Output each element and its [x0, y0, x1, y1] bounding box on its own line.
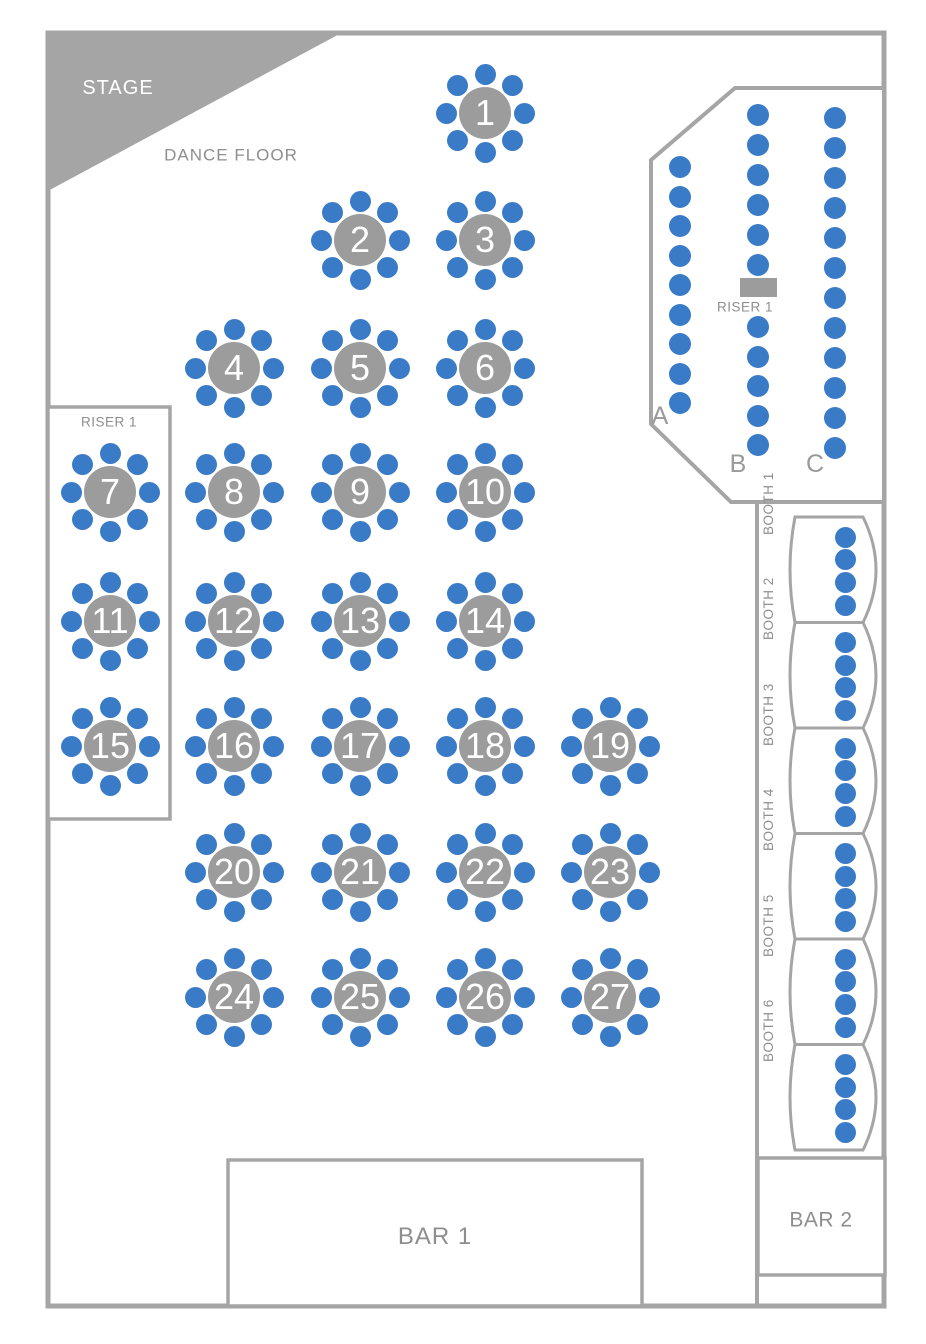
- table-2-chair[interactable]: [389, 230, 410, 251]
- table-1-chair[interactable]: [436, 103, 457, 124]
- table-11-chair[interactable]: [72, 638, 93, 659]
- booth-5-label: BOOTH 5: [762, 937, 852, 957]
- table-18-chair[interactable]: [502, 708, 523, 729]
- table-3-chair[interactable]: [475, 269, 496, 290]
- table-10-chair[interactable]: [514, 482, 535, 503]
- table-19-chair[interactable]: [600, 697, 621, 718]
- table-4[interactable]: 4: [208, 342, 260, 394]
- table-24[interactable]: 24: [208, 971, 260, 1023]
- table-16-chair[interactable]: [224, 697, 245, 718]
- table-5-chair[interactable]: [322, 330, 343, 351]
- table-6-chair[interactable]: [447, 330, 468, 351]
- table-5-chair[interactable]: [322, 385, 343, 406]
- table-18-chair[interactable]: [447, 763, 468, 784]
- row-A-seat[interactable]: [669, 215, 691, 237]
- table-26-chair[interactable]: [436, 987, 457, 1008]
- table-23-chair[interactable]: [600, 823, 621, 844]
- table-4-chair[interactable]: [196, 330, 217, 351]
- table-10-chair[interactable]: [502, 509, 523, 530]
- table-18-chair[interactable]: [514, 736, 535, 757]
- table-21-chair[interactable]: [350, 823, 371, 844]
- table-3-chair[interactable]: [447, 257, 468, 278]
- table-9-chair[interactable]: [322, 509, 343, 530]
- table-1-chair[interactable]: [447, 130, 468, 151]
- table-6-chair[interactable]: [436, 358, 457, 379]
- table-13-chair[interactable]: [311, 611, 332, 632]
- table-18-chair[interactable]: [502, 763, 523, 784]
- table-14-chair[interactable]: [475, 650, 496, 671]
- table-9-chair[interactable]: [350, 521, 371, 542]
- table-6-chair[interactable]: [514, 358, 535, 379]
- table-17-chair[interactable]: [377, 708, 398, 729]
- table-25-chair[interactable]: [377, 1014, 398, 1035]
- row-A-seat[interactable]: [669, 245, 691, 267]
- row-A-seat[interactable]: [669, 363, 691, 385]
- table-23-chair[interactable]: [627, 834, 648, 855]
- row-C-seat[interactable]: [824, 227, 846, 249]
- table-14-chair[interactable]: [475, 572, 496, 593]
- left-riser-label: RISER 1: [81, 415, 137, 429]
- table-18-chair[interactable]: [475, 697, 496, 718]
- table-24-chair[interactable]: [224, 948, 245, 969]
- table-7-chair[interactable]: [127, 454, 148, 475]
- table-22-chair[interactable]: [475, 823, 496, 844]
- table-10[interactable]: 10: [459, 466, 511, 518]
- table-16-chair[interactable]: [251, 708, 272, 729]
- table-3-chair[interactable]: [514, 230, 535, 251]
- row-C-seat[interactable]: [824, 407, 846, 429]
- table-8[interactable]: 8: [208, 466, 260, 518]
- table-19-chair[interactable]: [600, 775, 621, 796]
- table-14-chair[interactable]: [514, 611, 535, 632]
- row-B-seat[interactable]: [747, 134, 769, 156]
- table-20[interactable]: 20: [208, 846, 260, 898]
- table-5-chair[interactable]: [311, 358, 332, 379]
- table-12-chair[interactable]: [224, 650, 245, 671]
- table-24-chair[interactable]: [224, 1026, 245, 1047]
- row-C-seat[interactable]: [824, 197, 846, 219]
- table-27-chair[interactable]: [600, 1026, 621, 1047]
- table-10-chair[interactable]: [502, 454, 523, 475]
- table-11-chair[interactable]: [100, 572, 121, 593]
- table-20-chair[interactable]: [224, 823, 245, 844]
- table-4-chair[interactable]: [224, 397, 245, 418]
- table-17-chair[interactable]: [389, 736, 410, 757]
- table-25-chair[interactable]: [311, 987, 332, 1008]
- table-6-chair[interactable]: [475, 319, 496, 340]
- table-2-chair[interactable]: [311, 230, 332, 251]
- booth-3-seat[interactable]: [835, 783, 856, 804]
- table-25-chair[interactable]: [350, 1026, 371, 1047]
- table-25[interactable]: 25: [334, 971, 386, 1023]
- table-4-chair[interactable]: [196, 385, 217, 406]
- table-26-chair[interactable]: [514, 987, 535, 1008]
- table-11-chair[interactable]: [139, 611, 160, 632]
- table-23-chair[interactable]: [561, 862, 582, 883]
- table-16[interactable]: 16: [208, 720, 260, 772]
- table-2-chair[interactable]: [350, 269, 371, 290]
- table-22-chair[interactable]: [502, 889, 523, 910]
- table-7-chair[interactable]: [127, 509, 148, 530]
- table-22-chair[interactable]: [475, 901, 496, 922]
- table-21-chair[interactable]: [377, 834, 398, 855]
- table-19-chair[interactable]: [627, 708, 648, 729]
- table-13-chair[interactable]: [350, 650, 371, 671]
- booth-5-seat[interactable]: [835, 1017, 856, 1038]
- table-17-chair[interactable]: [350, 697, 371, 718]
- table-26[interactable]: 26: [459, 971, 511, 1023]
- table-7-chair[interactable]: [72, 509, 93, 530]
- table-6[interactable]: 6: [459, 342, 511, 394]
- table-22-chair[interactable]: [436, 862, 457, 883]
- table-15-chair[interactable]: [61, 736, 82, 757]
- table-18[interactable]: 18: [459, 720, 511, 772]
- table-9-chair[interactable]: [377, 454, 398, 475]
- table-10-chair[interactable]: [447, 509, 468, 530]
- table-17-chair[interactable]: [322, 763, 343, 784]
- table-11-chair[interactable]: [72, 583, 93, 604]
- table-2-chair[interactable]: [377, 202, 398, 223]
- table-12-chair[interactable]: [196, 638, 217, 659]
- table-4-chair[interactable]: [251, 330, 272, 351]
- table-4-chair[interactable]: [185, 358, 206, 379]
- table-13-chair[interactable]: [322, 638, 343, 659]
- table-1[interactable]: 1: [459, 87, 511, 139]
- table-22-chair[interactable]: [447, 889, 468, 910]
- table-1-chair[interactable]: [475, 142, 496, 163]
- table-12-chair[interactable]: [251, 583, 272, 604]
- table-24-chair[interactable]: [196, 1014, 217, 1035]
- table-22-chair[interactable]: [514, 862, 535, 883]
- table-10-chair[interactable]: [475, 443, 496, 464]
- stage-label: STAGE: [82, 78, 153, 98]
- table-9-chair[interactable]: [311, 482, 332, 503]
- row-C-seat[interactable]: [824, 317, 846, 339]
- table-24-chair[interactable]: [185, 987, 206, 1008]
- booth-5-seat[interactable]: [835, 994, 856, 1015]
- table-24-chair[interactable]: [263, 987, 284, 1008]
- table-22-chair[interactable]: [502, 834, 523, 855]
- row-C-seat[interactable]: [824, 287, 846, 309]
- row-C-seat[interactable]: [824, 137, 846, 159]
- booth-2-seat[interactable]: [835, 655, 856, 676]
- booth-2-label: BOOTH 2: [762, 620, 852, 640]
- table-21-chair[interactable]: [350, 901, 371, 922]
- table-10-chair[interactable]: [436, 482, 457, 503]
- table-4-chair[interactable]: [224, 319, 245, 340]
- table-2-chair[interactable]: [322, 202, 343, 223]
- table-12[interactable]: 12: [208, 595, 260, 647]
- table-5-chair[interactable]: [350, 319, 371, 340]
- table-15-chair[interactable]: [72, 763, 93, 784]
- table-16-chair[interactable]: [185, 736, 206, 757]
- table-12-chair[interactable]: [251, 638, 272, 659]
- table-21[interactable]: 21: [334, 846, 386, 898]
- table-20-chair[interactable]: [251, 834, 272, 855]
- floorplan-structure: [0, 0, 926, 1344]
- table-3-chair[interactable]: [447, 202, 468, 223]
- table-24-chair[interactable]: [251, 1014, 272, 1035]
- table-23-chair[interactable]: [639, 862, 660, 883]
- row-B-seat[interactable]: [747, 254, 769, 276]
- table-20-chair[interactable]: [224, 901, 245, 922]
- row-C-seat[interactable]: [824, 347, 846, 369]
- table-13[interactable]: 13: [334, 595, 386, 647]
- table-13-chair[interactable]: [350, 572, 371, 593]
- row-A-seat[interactable]: [669, 333, 691, 355]
- table-9[interactable]: 9: [334, 466, 386, 518]
- table-15-chair[interactable]: [100, 697, 121, 718]
- table-3[interactable]: 3: [459, 214, 511, 266]
- row-C-seat[interactable]: [824, 257, 846, 279]
- row-A-seat[interactable]: [669, 304, 691, 326]
- table-3-chair[interactable]: [502, 202, 523, 223]
- table-4-chair[interactable]: [251, 385, 272, 406]
- booth-6-seat[interactable]: [835, 1077, 856, 1098]
- table-13-chair[interactable]: [377, 583, 398, 604]
- booth-1-seat[interactable]: [835, 572, 856, 593]
- table-7-chair[interactable]: [139, 482, 160, 503]
- table-5-chair[interactable]: [350, 397, 371, 418]
- row-B-seat[interactable]: [747, 104, 769, 126]
- table-8-chair[interactable]: [224, 443, 245, 464]
- booth-4-seat[interactable]: [835, 911, 856, 932]
- table-19[interactable]: 19: [584, 720, 636, 772]
- table-5-chair[interactable]: [389, 358, 410, 379]
- theater-row-label-B: B: [718, 451, 758, 477]
- row-B-seat[interactable]: [747, 194, 769, 216]
- table-16-chair[interactable]: [263, 736, 284, 757]
- table-24-chair[interactable]: [251, 959, 272, 980]
- table-20-chair[interactable]: [251, 889, 272, 910]
- table-27-chair[interactable]: [561, 987, 582, 1008]
- table-12-chair[interactable]: [263, 611, 284, 632]
- table-26-chair[interactable]: [502, 1014, 523, 1035]
- bar2-label: BAR 2: [789, 1210, 852, 1231]
- booth-5-seat[interactable]: [835, 971, 856, 992]
- table-7[interactable]: 7: [84, 466, 136, 518]
- booth-4-seat[interactable]: [835, 866, 856, 887]
- table-7-chair[interactable]: [100, 443, 121, 464]
- table-26-chair[interactable]: [475, 1026, 496, 1047]
- table-5-chair[interactable]: [377, 385, 398, 406]
- table-15-chair[interactable]: [100, 775, 121, 796]
- table-27-chair[interactable]: [600, 948, 621, 969]
- table-12-chair[interactable]: [185, 611, 206, 632]
- table-21-chair[interactable]: [389, 862, 410, 883]
- booth-3-seat[interactable]: [835, 760, 856, 781]
- bar1-label: BAR 1: [398, 1225, 472, 1249]
- table-19-chair[interactable]: [639, 736, 660, 757]
- table-11[interactable]: 11: [84, 595, 136, 647]
- table-25-chair[interactable]: [389, 987, 410, 1008]
- table-17[interactable]: 17: [334, 720, 386, 772]
- table-26-chair[interactable]: [502, 959, 523, 980]
- table-21-chair[interactable]: [322, 889, 343, 910]
- booth-6-seat[interactable]: [835, 1122, 856, 1143]
- table-26-chair[interactable]: [475, 948, 496, 969]
- theater-riser-label: RISER 1: [717, 300, 773, 314]
- table-7-chair[interactable]: [100, 521, 121, 542]
- table-6-chair[interactable]: [502, 330, 523, 351]
- table-2-chair[interactable]: [350, 191, 371, 212]
- row-A-seat[interactable]: [669, 156, 691, 178]
- table-20-chair[interactable]: [196, 889, 217, 910]
- theater-row-label-C: C: [795, 451, 835, 477]
- table-8-chair[interactable]: [185, 482, 206, 503]
- table-9-chair[interactable]: [350, 443, 371, 464]
- table-18-chair[interactable]: [436, 736, 457, 757]
- table-13-chair[interactable]: [389, 611, 410, 632]
- table-17-chair[interactable]: [311, 736, 332, 757]
- booth-4-label: BOOTH 4: [762, 831, 852, 851]
- table-8-chair[interactable]: [263, 482, 284, 503]
- booth-1-label: BOOTH 1: [762, 515, 852, 535]
- table-9-chair[interactable]: [377, 509, 398, 530]
- table-16-chair[interactable]: [196, 763, 217, 784]
- table-27-chair[interactable]: [639, 987, 660, 1008]
- table-1-chair[interactable]: [447, 75, 468, 96]
- table-3-chair[interactable]: [436, 230, 457, 251]
- table-25-chair[interactable]: [350, 948, 371, 969]
- table-1-chair[interactable]: [514, 103, 535, 124]
- table-16-chair[interactable]: [224, 775, 245, 796]
- table-3-chair[interactable]: [502, 257, 523, 278]
- table-2[interactable]: 2: [334, 214, 386, 266]
- booth-1-seat[interactable]: [835, 549, 856, 570]
- booth-6-seat[interactable]: [835, 1099, 856, 1120]
- table-8-chair[interactable]: [251, 509, 272, 530]
- table-19-chair[interactable]: [627, 763, 648, 784]
- row-B-seat[interactable]: [747, 405, 769, 427]
- table-19-chair[interactable]: [561, 736, 582, 757]
- row-B-seat[interactable]: [747, 164, 769, 186]
- booth-3-seat[interactable]: [835, 806, 856, 827]
- table-15-chair[interactable]: [127, 708, 148, 729]
- theater-row-label-A: A: [640, 403, 680, 429]
- table-21-chair[interactable]: [311, 862, 332, 883]
- row-A-seat[interactable]: [669, 186, 691, 208]
- table-1-chair[interactable]: [502, 75, 523, 96]
- table-15[interactable]: 15: [84, 720, 136, 772]
- table-21-chair[interactable]: [377, 889, 398, 910]
- booth-4-seat[interactable]: [835, 888, 856, 909]
- table-16-chair[interactable]: [251, 763, 272, 784]
- table-14-chair[interactable]: [436, 611, 457, 632]
- table-23-chair[interactable]: [627, 889, 648, 910]
- table-8-chair[interactable]: [196, 509, 217, 530]
- row-B-seat[interactable]: [747, 346, 769, 368]
- table-11-chair[interactable]: [61, 611, 82, 632]
- table-8-chair[interactable]: [251, 454, 272, 475]
- table-20-chair[interactable]: [263, 862, 284, 883]
- table-23-chair[interactable]: [600, 901, 621, 922]
- row-C-seat[interactable]: [824, 377, 846, 399]
- table-11-chair[interactable]: [127, 583, 148, 604]
- table-23[interactable]: 23: [584, 846, 636, 898]
- theater-riser-platform: [740, 278, 777, 297]
- table-12-chair[interactable]: [224, 572, 245, 593]
- table-6-chair[interactable]: [502, 385, 523, 406]
- table-6-chair[interactable]: [475, 397, 496, 418]
- table-27[interactable]: 27: [584, 971, 636, 1023]
- table-15-chair[interactable]: [127, 763, 148, 784]
- row-B-seat[interactable]: [747, 316, 769, 338]
- table-23-chair[interactable]: [572, 889, 593, 910]
- row-C-seat[interactable]: [824, 167, 846, 189]
- booth-6-label: BOOTH 6: [762, 1042, 852, 1062]
- booth-2-seat[interactable]: [835, 700, 856, 721]
- table-14-chair[interactable]: [502, 583, 523, 604]
- table-9-chair[interactable]: [322, 454, 343, 475]
- table-18-chair[interactable]: [475, 775, 496, 796]
- table-27-chair[interactable]: [572, 1014, 593, 1035]
- table-11-chair[interactable]: [100, 650, 121, 671]
- table-22[interactable]: 22: [459, 846, 511, 898]
- table-1-chair[interactable]: [502, 130, 523, 151]
- row-B-seat[interactable]: [747, 375, 769, 397]
- booth-3-label: BOOTH 3: [762, 726, 852, 746]
- table-10-chair[interactable]: [475, 521, 496, 542]
- row-B-seat[interactable]: [747, 224, 769, 246]
- booth-1-seat[interactable]: [835, 595, 856, 616]
- table-25-chair[interactable]: [377, 959, 398, 980]
- table-27-chair[interactable]: [627, 1014, 648, 1035]
- table-3-chair[interactable]: [475, 191, 496, 212]
- table-20-chair[interactable]: [185, 862, 206, 883]
- row-A-seat[interactable]: [669, 274, 691, 296]
- table-2-chair[interactable]: [322, 257, 343, 278]
- dance-floor-label: DANCE FLOOR: [164, 147, 298, 164]
- table-14[interactable]: 14: [459, 595, 511, 647]
- table-26-chair[interactable]: [447, 1014, 468, 1035]
- table-2-chair[interactable]: [377, 257, 398, 278]
- table-7-chair[interactable]: [72, 454, 93, 475]
- table-8-chair[interactable]: [196, 454, 217, 475]
- row-C-seat[interactable]: [824, 107, 846, 129]
- table-9-chair[interactable]: [389, 482, 410, 503]
- table-4-chair[interactable]: [263, 358, 284, 379]
- table-25-chair[interactable]: [322, 1014, 343, 1035]
- table-17-chair[interactable]: [377, 763, 398, 784]
- table-15-chair[interactable]: [139, 736, 160, 757]
- table-14-chair[interactable]: [447, 638, 468, 659]
- table-5[interactable]: 5: [334, 342, 386, 394]
- table-6-chair[interactable]: [447, 385, 468, 406]
- table-19-chair[interactable]: [572, 763, 593, 784]
- table-14-chair[interactable]: [502, 638, 523, 659]
- table-1-chair[interactable]: [475, 64, 496, 85]
- table-13-chair[interactable]: [377, 638, 398, 659]
- stage: [46, 31, 345, 192]
- table-5-chair[interactable]: [377, 330, 398, 351]
- table-7-chair[interactable]: [61, 482, 82, 503]
- table-8-chair[interactable]: [224, 521, 245, 542]
- table-11-chair[interactable]: [127, 638, 148, 659]
- table-17-chair[interactable]: [350, 775, 371, 796]
- table-27-chair[interactable]: [627, 959, 648, 980]
- booth-2-seat[interactable]: [835, 677, 856, 698]
- venue-floorplan: STAGE DANCE FLOOR RISER 1 RISER 1 BAR 1 …: [0, 0, 926, 1344]
